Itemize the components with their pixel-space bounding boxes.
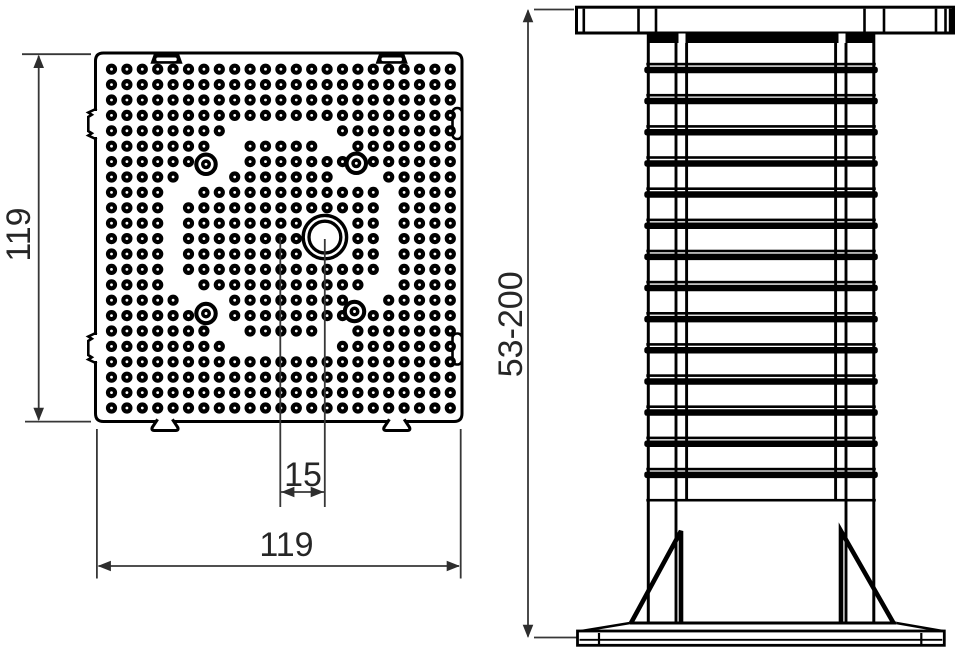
svg-text:15: 15 [284,456,322,494]
svg-text:119: 119 [259,526,313,564]
svg-text:119: 119 [0,207,38,261]
svg-text:53-200: 53-200 [492,271,530,377]
